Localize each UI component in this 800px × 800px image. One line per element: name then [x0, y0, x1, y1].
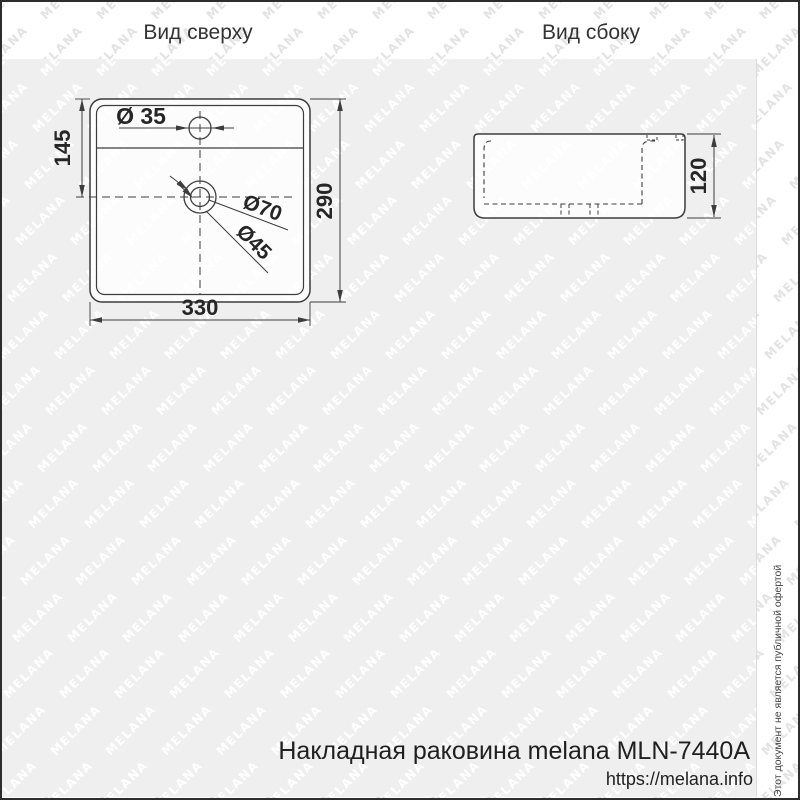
drawing-sheet: MELANAMELANAMELANAMELANAMELANAMELANAMELA… — [0, 0, 800, 800]
faucet-diameter-label: Ø 35 — [116, 103, 166, 129]
product-name: Накладная раковина melana MLN-7440A — [278, 737, 750, 766]
sideview-outline — [474, 134, 685, 218]
dim145-label: 145 — [50, 130, 75, 167]
dim290-label: 290 — [312, 183, 337, 220]
side-view-title: Вид сбоку — [481, 21, 701, 45]
top-view-title: Вид сверху — [88, 21, 308, 45]
website-url: https://melana.info — [606, 769, 753, 790]
dim330-label: 330 — [182, 295, 219, 320]
technical-drawing: Ø 35 145 290 330 Ø70 Ø45 120 — [2, 2, 800, 800]
disclaimer-text: Этот документ не является публичной офер… — [772, 565, 784, 797]
dim120-label: 120 — [686, 158, 711, 195]
